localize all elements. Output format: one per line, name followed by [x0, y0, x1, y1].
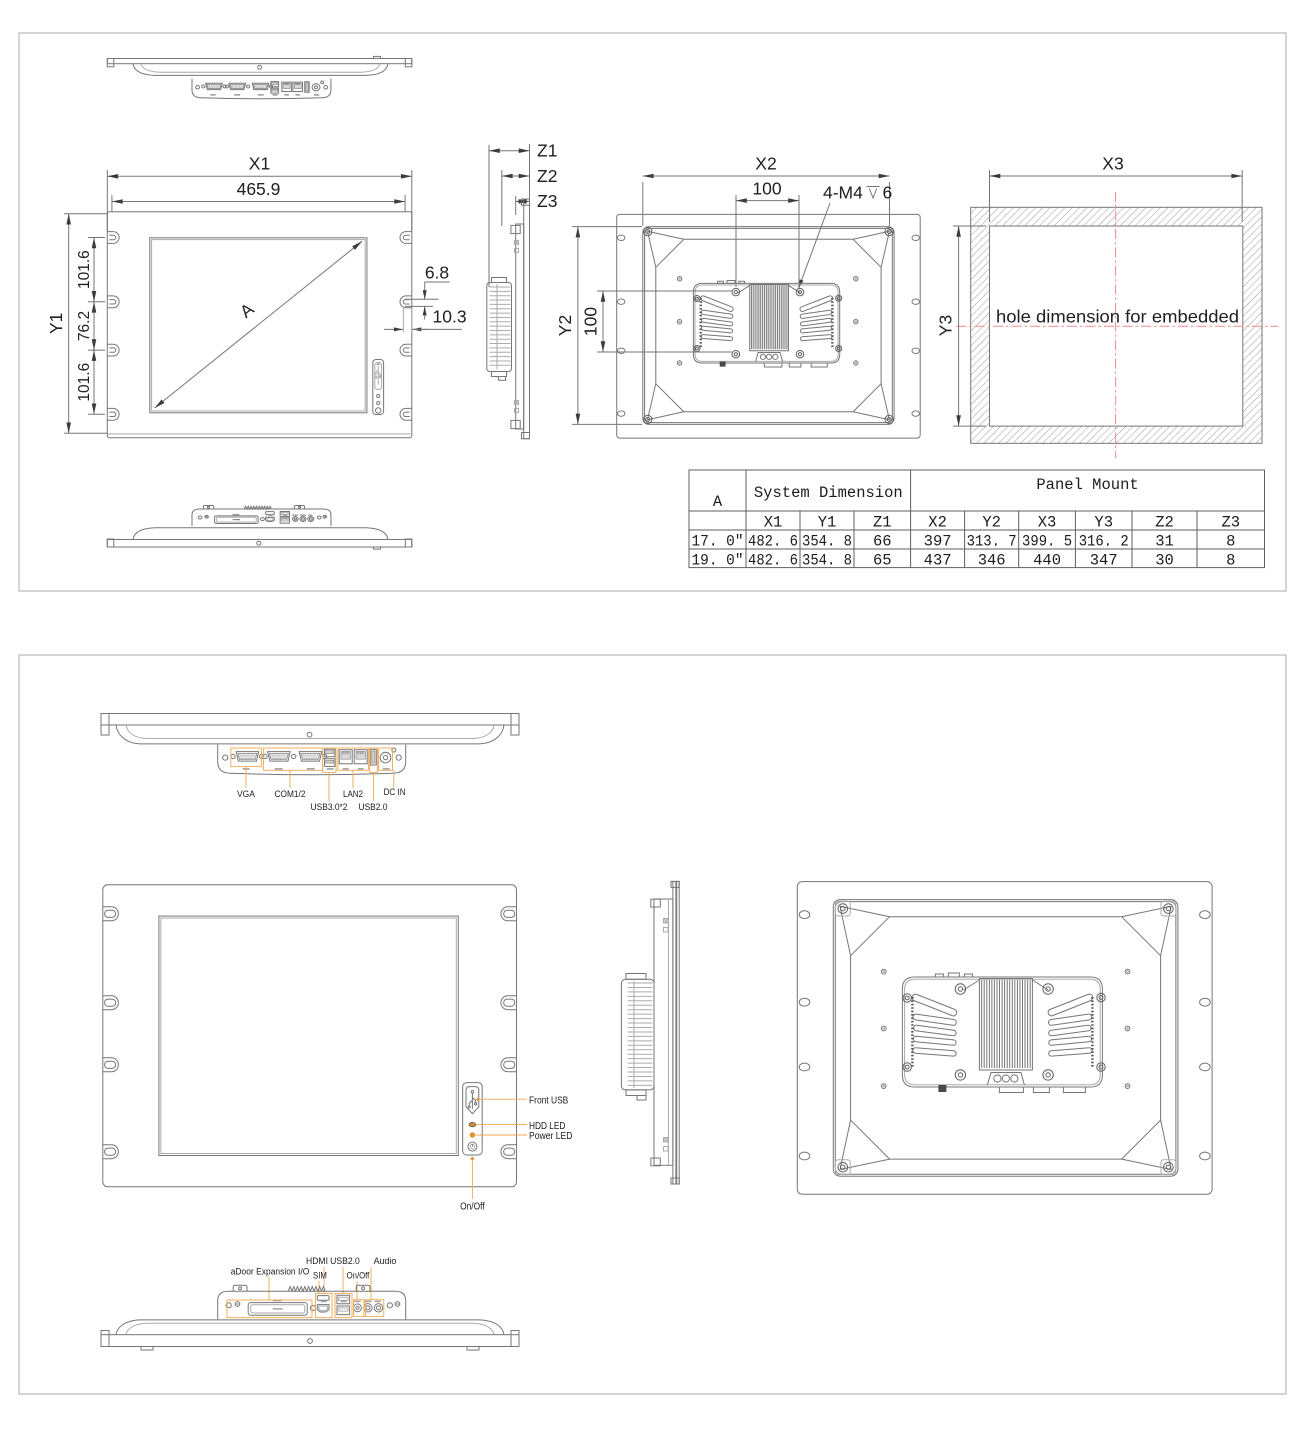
svg-text:6: 6	[883, 183, 893, 203]
svg-text:HDMI: HDMI	[306, 1256, 328, 1267]
svg-text:17. 0": 17. 0"	[692, 533, 744, 551]
svg-text:440: 440	[1033, 551, 1061, 569]
svg-text:Front USB: Front USB	[529, 1095, 568, 1106]
svg-text:354. 8: 354. 8	[802, 533, 852, 551]
svg-text:Z1: Z1	[873, 514, 892, 532]
svg-text:31: 31	[1155, 533, 1174, 551]
svg-text:482. 6: 482. 6	[748, 551, 798, 569]
svg-text:Panel Mount: Panel Mount	[1036, 476, 1138, 494]
svg-text:DC IN: DC IN	[384, 787, 406, 798]
svg-text:VGA: VGA	[237, 789, 256, 800]
svg-text:399. 5: 399. 5	[1022, 533, 1072, 551]
svg-text:65: 65	[873, 551, 892, 569]
svg-text:100: 100	[581, 307, 601, 336]
svg-text:101.6: 101.6	[76, 363, 93, 402]
svg-text:Y1: Y1	[46, 313, 66, 334]
svg-text:4-M4: 4-M4	[823, 183, 863, 203]
svg-text:Audio: Audio	[374, 1256, 397, 1267]
svg-text:Y3: Y3	[936, 315, 956, 336]
svg-text:397: 397	[924, 533, 952, 551]
svg-text:Y1: Y1	[818, 514, 837, 532]
svg-text:X2: X2	[928, 514, 947, 532]
svg-text:19. 0": 19. 0"	[692, 551, 744, 569]
svg-text:30: 30	[1155, 551, 1174, 569]
svg-text:482. 6: 482. 6	[748, 533, 798, 551]
svg-text:10.3: 10.3	[433, 307, 467, 327]
svg-text:Z3: Z3	[1221, 514, 1240, 532]
svg-text:76.2: 76.2	[76, 311, 93, 341]
svg-text:Z2: Z2	[1155, 514, 1174, 532]
svg-text:8: 8	[1226, 551, 1235, 569]
svg-text:USB2.0: USB2.0	[359, 802, 388, 813]
svg-text:101.6: 101.6	[76, 250, 93, 289]
svg-text:X3: X3	[1038, 514, 1057, 532]
svg-text:USB2.0: USB2.0	[330, 1256, 360, 1267]
svg-text:aDoor Expansion I/O: aDoor Expansion I/O	[231, 1267, 310, 1278]
svg-text:LAN2: LAN2	[343, 789, 363, 800]
svg-text:Z1: Z1	[537, 141, 557, 161]
svg-text:347: 347	[1090, 551, 1118, 569]
svg-text:8: 8	[1226, 533, 1235, 551]
svg-text:66: 66	[873, 533, 892, 551]
svg-text:COM1/2: COM1/2	[275, 789, 306, 800]
svg-text:USB3.0*2: USB3.0*2	[311, 802, 348, 813]
svg-text:HDD LED: HDD LED	[529, 1121, 565, 1132]
svg-text:X1: X1	[249, 154, 270, 174]
svg-text:SIM: SIM	[313, 1271, 327, 1282]
svg-text:316. 2: 316. 2	[1079, 533, 1129, 551]
svg-text:hole dimension for embedded: hole dimension for embedded	[996, 307, 1239, 327]
svg-text:Y3: Y3	[1094, 514, 1113, 532]
svg-text:346: 346	[978, 551, 1006, 569]
svg-text:100: 100	[752, 179, 781, 199]
svg-text:Power LED: Power LED	[529, 1131, 572, 1142]
svg-text:Z2: Z2	[537, 166, 557, 186]
svg-text:X2: X2	[755, 154, 776, 174]
svg-text:465.9: 465.9	[237, 179, 281, 199]
svg-text:A: A	[713, 493, 723, 511]
svg-text:Z3: Z3	[537, 191, 557, 211]
svg-text:313. 7: 313. 7	[967, 533, 1017, 551]
svg-text:On/Off: On/Off	[460, 1202, 485, 1213]
svg-text:X3: X3	[1102, 154, 1123, 174]
svg-text:6.8: 6.8	[425, 263, 449, 283]
svg-text:System Dimension: System Dimension	[754, 484, 903, 502]
svg-text:X1: X1	[764, 514, 783, 532]
svg-text:On/Off: On/Off	[347, 1271, 370, 1282]
svg-text:Y2: Y2	[555, 315, 575, 336]
svg-text:354. 8: 354. 8	[802, 551, 852, 569]
svg-text:437: 437	[924, 551, 952, 569]
svg-text:Y2: Y2	[982, 514, 1001, 532]
